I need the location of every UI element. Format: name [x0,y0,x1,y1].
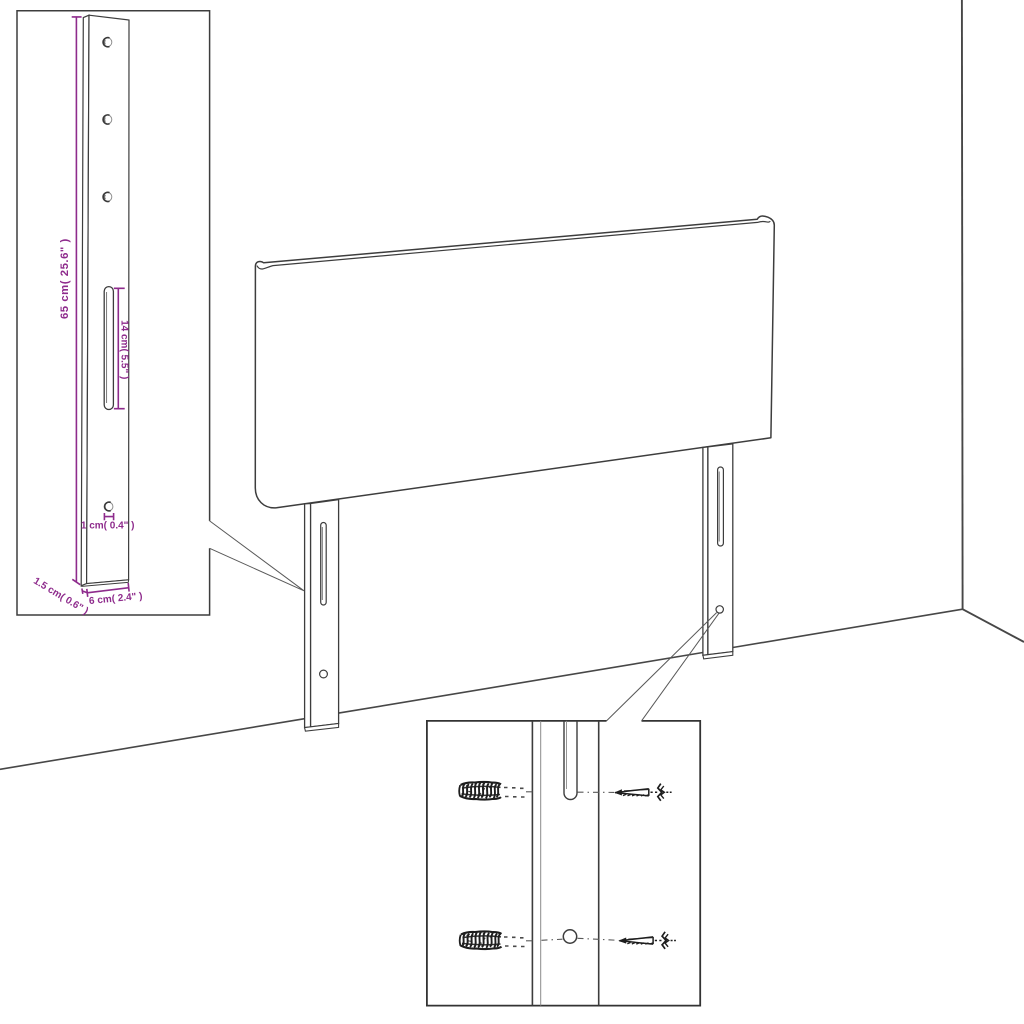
svg-text:14 cm( 5.5" ): 14 cm( 5.5" ) [119,320,130,379]
svg-text:65 cm( 25.6" ): 65 cm( 25.6" ) [59,238,71,319]
svg-text:6 cm( 2.4" ): 6 cm( 2.4" ) [89,591,143,607]
svg-text:1 cm( 0.4" ): 1 cm( 0.4" ) [81,521,135,532]
